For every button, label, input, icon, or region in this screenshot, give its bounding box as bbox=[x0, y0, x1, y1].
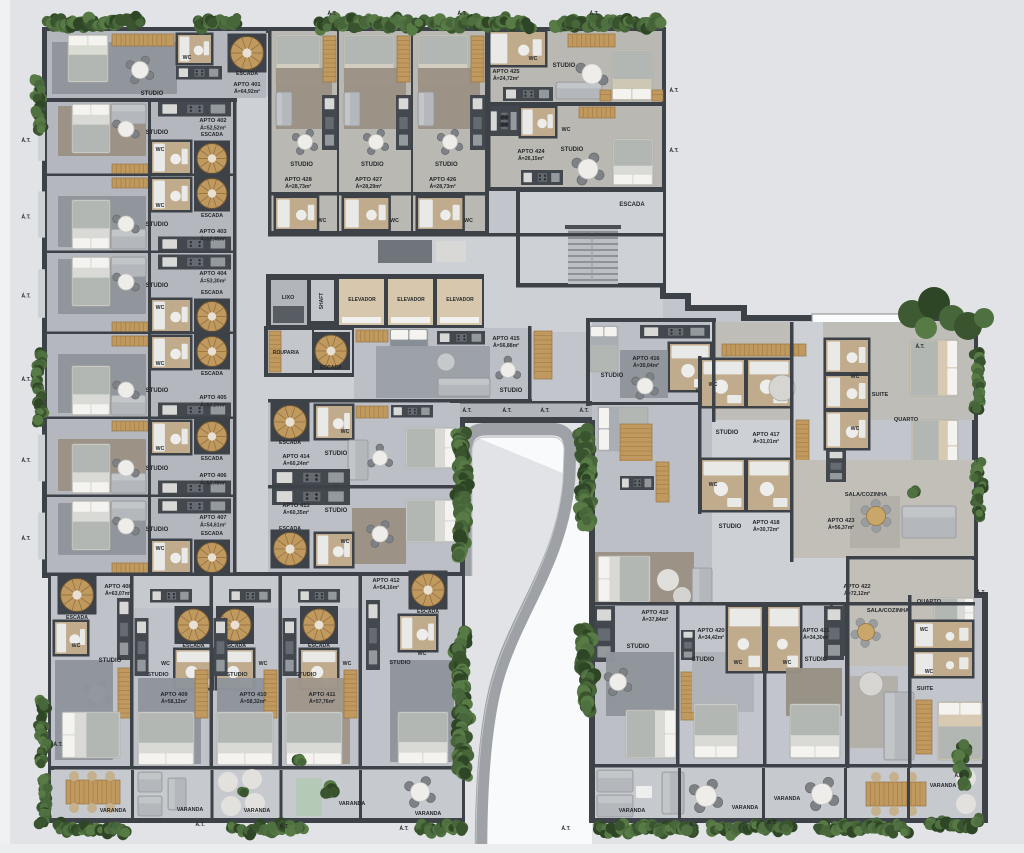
svg-text:STUDIO: STUDIO bbox=[601, 373, 624, 379]
svg-text:ESCADA: ESCADA bbox=[279, 440, 301, 446]
svg-text:SUITE: SUITE bbox=[872, 392, 889, 398]
svg-text:Á=58,12m²: Á=58,12m² bbox=[161, 698, 187, 705]
svg-text:APTO 416: APTO 416 bbox=[632, 356, 660, 362]
svg-text:APTO 421: APTO 421 bbox=[802, 628, 830, 634]
svg-text:Á.T.: Á.T. bbox=[327, 10, 337, 17]
svg-text:Á=60,35m²: Á=60,35m² bbox=[283, 509, 309, 516]
svg-text:WC: WC bbox=[734, 660, 743, 666]
svg-text:APTO 412: APTO 412 bbox=[372, 578, 399, 584]
svg-text:Á=58,32m²: Á=58,32m² bbox=[240, 698, 266, 705]
svg-text:WC: WC bbox=[156, 446, 165, 452]
svg-text:Á=34,30m²: Á=34,30m² bbox=[803, 634, 829, 641]
svg-text:Á.T.: Á.T. bbox=[21, 457, 31, 464]
svg-text:Á=52,45m²: Á=52,45m² bbox=[200, 236, 226, 243]
svg-text:STUDIO: STUDIO bbox=[389, 660, 411, 666]
svg-text:Á.T.: Á.T. bbox=[955, 772, 965, 779]
svg-text:APTO 423: APTO 423 bbox=[827, 518, 855, 524]
svg-text:Á.T.: Á.T. bbox=[502, 407, 512, 414]
svg-text:APTO 401: APTO 401 bbox=[233, 82, 261, 88]
svg-text:Á=64,92m²: Á=64,92m² bbox=[234, 88, 260, 95]
svg-text:ESCADA: ESCADA bbox=[236, 71, 258, 77]
svg-text:Á.T.: Á.T. bbox=[399, 825, 409, 832]
svg-text:ESCADA: ESCADA bbox=[279, 526, 301, 532]
svg-text:VARANDA: VARANDA bbox=[415, 811, 442, 817]
svg-text:ROUPARIA: ROUPARIA bbox=[273, 350, 300, 356]
svg-text:STUDIO: STUDIO bbox=[141, 91, 164, 97]
svg-text:WC: WC bbox=[156, 305, 165, 311]
svg-text:Á.T.: Á.T. bbox=[279, 823, 289, 830]
svg-text:Á.T.: Á.T. bbox=[21, 213, 31, 220]
svg-text:Á=24,72m²: Á=24,72m² bbox=[493, 75, 519, 82]
svg-text:Á.T.: Á.T. bbox=[689, 821, 699, 828]
svg-text:Á.T.: Á.T. bbox=[53, 741, 63, 748]
svg-text:ESCADA: ESCADA bbox=[201, 456, 223, 462]
svg-text:Á=56,88m²: Á=56,88m² bbox=[493, 342, 519, 349]
svg-text:STUDIO: STUDIO bbox=[146, 130, 169, 136]
svg-text:APTO 418: APTO 418 bbox=[752, 520, 780, 526]
svg-text:Á.T.: Á.T. bbox=[977, 589, 987, 596]
svg-text:APTO 409: APTO 409 bbox=[160, 692, 188, 698]
svg-text:Á.T.: Á.T. bbox=[457, 10, 467, 17]
svg-text:STUDIO: STUDIO bbox=[146, 466, 169, 472]
svg-text:ESCADA: ESCADA bbox=[320, 365, 342, 371]
svg-text:APTO 405: APTO 405 bbox=[199, 395, 227, 401]
svg-text:WC: WC bbox=[341, 539, 350, 545]
svg-text:LIXO: LIXO bbox=[282, 295, 295, 301]
svg-text:WC: WC bbox=[156, 147, 165, 153]
svg-text:WC: WC bbox=[562, 127, 571, 133]
svg-text:WC: WC bbox=[156, 546, 165, 552]
svg-text:Á.T.: Á.T. bbox=[561, 825, 571, 832]
svg-text:APTO 417: APTO 417 bbox=[752, 432, 779, 438]
svg-text:ELEVADOR: ELEVADOR bbox=[348, 297, 376, 303]
svg-text:ESCADA: ESCADA bbox=[201, 132, 223, 138]
svg-text:Á.T.: Á.T. bbox=[195, 821, 205, 828]
svg-text:Á=30,04m²: Á=30,04m² bbox=[633, 362, 659, 369]
svg-text:Á.T.: Á.T. bbox=[21, 535, 31, 542]
svg-text:SHAFT: SHAFT bbox=[319, 293, 325, 310]
svg-text:WC: WC bbox=[851, 374, 860, 380]
svg-text:WC: WC bbox=[390, 218, 399, 224]
svg-text:STUDIO: STUDIO bbox=[719, 524, 742, 530]
svg-text:Á=54,61m²: Á=54,61m² bbox=[200, 522, 226, 529]
svg-text:WC: WC bbox=[851, 426, 860, 432]
svg-text:STUDIO: STUDIO bbox=[627, 644, 650, 650]
svg-text:STUDIO: STUDIO bbox=[361, 162, 384, 168]
svg-text:APTO 411: APTO 411 bbox=[309, 692, 337, 698]
svg-text:Á=53,30m²: Á=53,30m² bbox=[200, 278, 226, 285]
svg-text:WC: WC bbox=[156, 361, 165, 367]
svg-text:APTO 406: APTO 406 bbox=[199, 473, 227, 479]
svg-text:Á=53,48m²: Á=53,48m² bbox=[200, 480, 226, 487]
svg-text:ESCADA: ESCADA bbox=[201, 371, 223, 377]
svg-text:Á=28,29m²: Á=28,29m² bbox=[356, 183, 382, 190]
svg-text:ELEVADOR: ELEVADOR bbox=[397, 297, 425, 303]
svg-text:WC: WC bbox=[161, 661, 170, 667]
svg-text:VARANDA: VARANDA bbox=[339, 801, 366, 807]
svg-text:APTO 424: APTO 424 bbox=[517, 149, 545, 155]
svg-text:WC: WC bbox=[259, 661, 268, 667]
svg-text:Á.T.: Á.T. bbox=[916, 343, 926, 350]
svg-text:Á=30,72m²: Á=30,72m² bbox=[753, 526, 779, 533]
svg-text:WC: WC bbox=[529, 56, 538, 62]
svg-text:Á.T.: Á.T. bbox=[669, 147, 679, 154]
svg-text:WC: WC bbox=[156, 203, 165, 209]
svg-text:VARANDA: VARANDA bbox=[244, 808, 271, 814]
svg-text:APTO 404: APTO 404 bbox=[199, 271, 227, 277]
svg-text:STUDIO: STUDIO bbox=[146, 527, 169, 533]
svg-text:ESCADA: ESCADA bbox=[619, 202, 645, 208]
svg-text:WC: WC bbox=[709, 482, 718, 488]
svg-text:APTO 408: APTO 408 bbox=[104, 584, 132, 590]
svg-text:APTO 413: APTO 413 bbox=[282, 503, 310, 509]
svg-text:Á=28,73m²: Á=28,73m² bbox=[430, 183, 456, 190]
svg-text:WC: WC bbox=[318, 218, 327, 224]
svg-text:APTO 425: APTO 425 bbox=[492, 69, 520, 75]
svg-text:WC: WC bbox=[183, 55, 192, 61]
svg-text:STUDIO: STUDIO bbox=[226, 672, 248, 678]
svg-text:STUDIO: STUDIO bbox=[146, 283, 169, 289]
svg-text:Á=37,84m²: Á=37,84m² bbox=[642, 616, 668, 623]
svg-text:ESCADA: ESCADA bbox=[201, 531, 223, 537]
svg-text:Á=34,42m²: Á=34,42m² bbox=[698, 634, 724, 641]
svg-text:Á.T.: Á.T. bbox=[462, 407, 472, 414]
svg-text:VARANDA: VARANDA bbox=[930, 783, 957, 789]
svg-text:Á=26,15m²: Á=26,15m² bbox=[518, 155, 544, 162]
svg-text:VARANDA: VARANDA bbox=[732, 805, 759, 811]
svg-text:STUDIO: STUDIO bbox=[692, 657, 715, 663]
svg-text:WC: WC bbox=[464, 218, 473, 224]
svg-text:APTO 402: APTO 402 bbox=[199, 118, 226, 124]
svg-text:WC: WC bbox=[72, 643, 81, 649]
svg-text:ESCADA: ESCADA bbox=[201, 290, 223, 296]
svg-text:VARANDA: VARANDA bbox=[100, 808, 127, 814]
svg-text:STUDIO: STUDIO bbox=[325, 451, 348, 457]
svg-text:Á.T.: Á.T. bbox=[669, 87, 679, 94]
svg-text:APTO 426: APTO 426 bbox=[429, 177, 457, 183]
svg-text:Á=31,01m²: Á=31,01m² bbox=[753, 438, 779, 445]
svg-text:Á=52,52m²: Á=52,52m² bbox=[200, 125, 226, 132]
svg-text:Á=60,24m²: Á=60,24m² bbox=[283, 460, 309, 467]
svg-text:WC: WC bbox=[783, 660, 792, 666]
svg-text:APTO 419: APTO 419 bbox=[641, 610, 669, 616]
svg-text:APTO 414: APTO 414 bbox=[282, 454, 310, 460]
svg-text:ELEVADOR: ELEVADOR bbox=[446, 297, 474, 303]
svg-text:STUDIO: STUDIO bbox=[435, 162, 458, 168]
svg-text:Á.T.: Á.T. bbox=[21, 137, 31, 144]
svg-text:Á.T.: Á.T. bbox=[21, 293, 31, 300]
svg-text:WC: WC bbox=[920, 627, 929, 633]
svg-text:Á.T.: Á.T. bbox=[21, 376, 31, 383]
svg-text:APTO 403: APTO 403 bbox=[199, 229, 227, 235]
svg-text:Á=54,16m²: Á=54,16m² bbox=[373, 584, 399, 591]
svg-text:WC: WC bbox=[418, 651, 427, 657]
svg-text:APTO 410: APTO 410 bbox=[239, 692, 266, 698]
svg-text:STUDIO: STUDIO bbox=[325, 508, 348, 514]
svg-text:Á=28,73m²: Á=28,73m² bbox=[285, 183, 311, 190]
svg-text:Á.T.: Á.T. bbox=[767, 819, 777, 826]
svg-text:Á=53,20m²: Á=53,20m² bbox=[200, 402, 226, 409]
svg-text:VARANDA: VARANDA bbox=[619, 808, 646, 814]
svg-text:STUDIO: STUDIO bbox=[805, 657, 828, 663]
svg-text:APTO 420: APTO 420 bbox=[697, 628, 724, 634]
svg-text:WC: WC bbox=[343, 661, 352, 667]
svg-text:STUDIO: STUDIO bbox=[561, 147, 584, 153]
svg-text:SALA/COZINHA: SALA/COZINHA bbox=[845, 492, 887, 498]
svg-text:Á=56,37m²: Á=56,37m² bbox=[828, 524, 854, 531]
svg-text:STUDIO: STUDIO bbox=[553, 63, 576, 69]
svg-text:ESCADA: ESCADA bbox=[201, 213, 223, 219]
svg-text:VARANDA: VARANDA bbox=[177, 807, 204, 813]
svg-text:SUITE: SUITE bbox=[917, 686, 934, 692]
svg-text:QUARTO: QUARTO bbox=[894, 417, 919, 423]
svg-text:APTO 415: APTO 415 bbox=[492, 336, 520, 342]
svg-text:STUDIO: STUDIO bbox=[290, 162, 313, 168]
svg-text:Á.T.: Á.T. bbox=[579, 407, 589, 414]
svg-text:SALA/COZINHA: SALA/COZINHA bbox=[867, 608, 909, 614]
svg-text:Á=57,76m²: Á=57,76m² bbox=[309, 698, 335, 705]
svg-text:Á.T.: Á.T. bbox=[540, 407, 550, 414]
svg-text:STUDIO: STUDIO bbox=[99, 658, 122, 664]
svg-text:STUDIO: STUDIO bbox=[147, 672, 169, 678]
svg-text:Á.T.: Á.T. bbox=[589, 10, 599, 17]
svg-text:STUDIO: STUDIO bbox=[295, 672, 317, 678]
svg-text:APTO 427: APTO 427 bbox=[355, 177, 382, 183]
svg-text:STUDIO: STUDIO bbox=[146, 222, 169, 228]
svg-text:VARANDA: VARANDA bbox=[774, 796, 801, 802]
svg-text:APTO 428: APTO 428 bbox=[285, 177, 313, 183]
svg-text:STUDIO: STUDIO bbox=[500, 388, 523, 394]
svg-text:Á=63,07m²: Á=63,07m² bbox=[105, 590, 131, 597]
svg-text:APTO 407: APTO 407 bbox=[199, 515, 226, 521]
svg-text:WC: WC bbox=[925, 669, 934, 675]
svg-text:STUDIO: STUDIO bbox=[716, 430, 739, 436]
svg-text:STUDIO: STUDIO bbox=[146, 388, 169, 394]
svg-text:WC: WC bbox=[341, 429, 350, 435]
